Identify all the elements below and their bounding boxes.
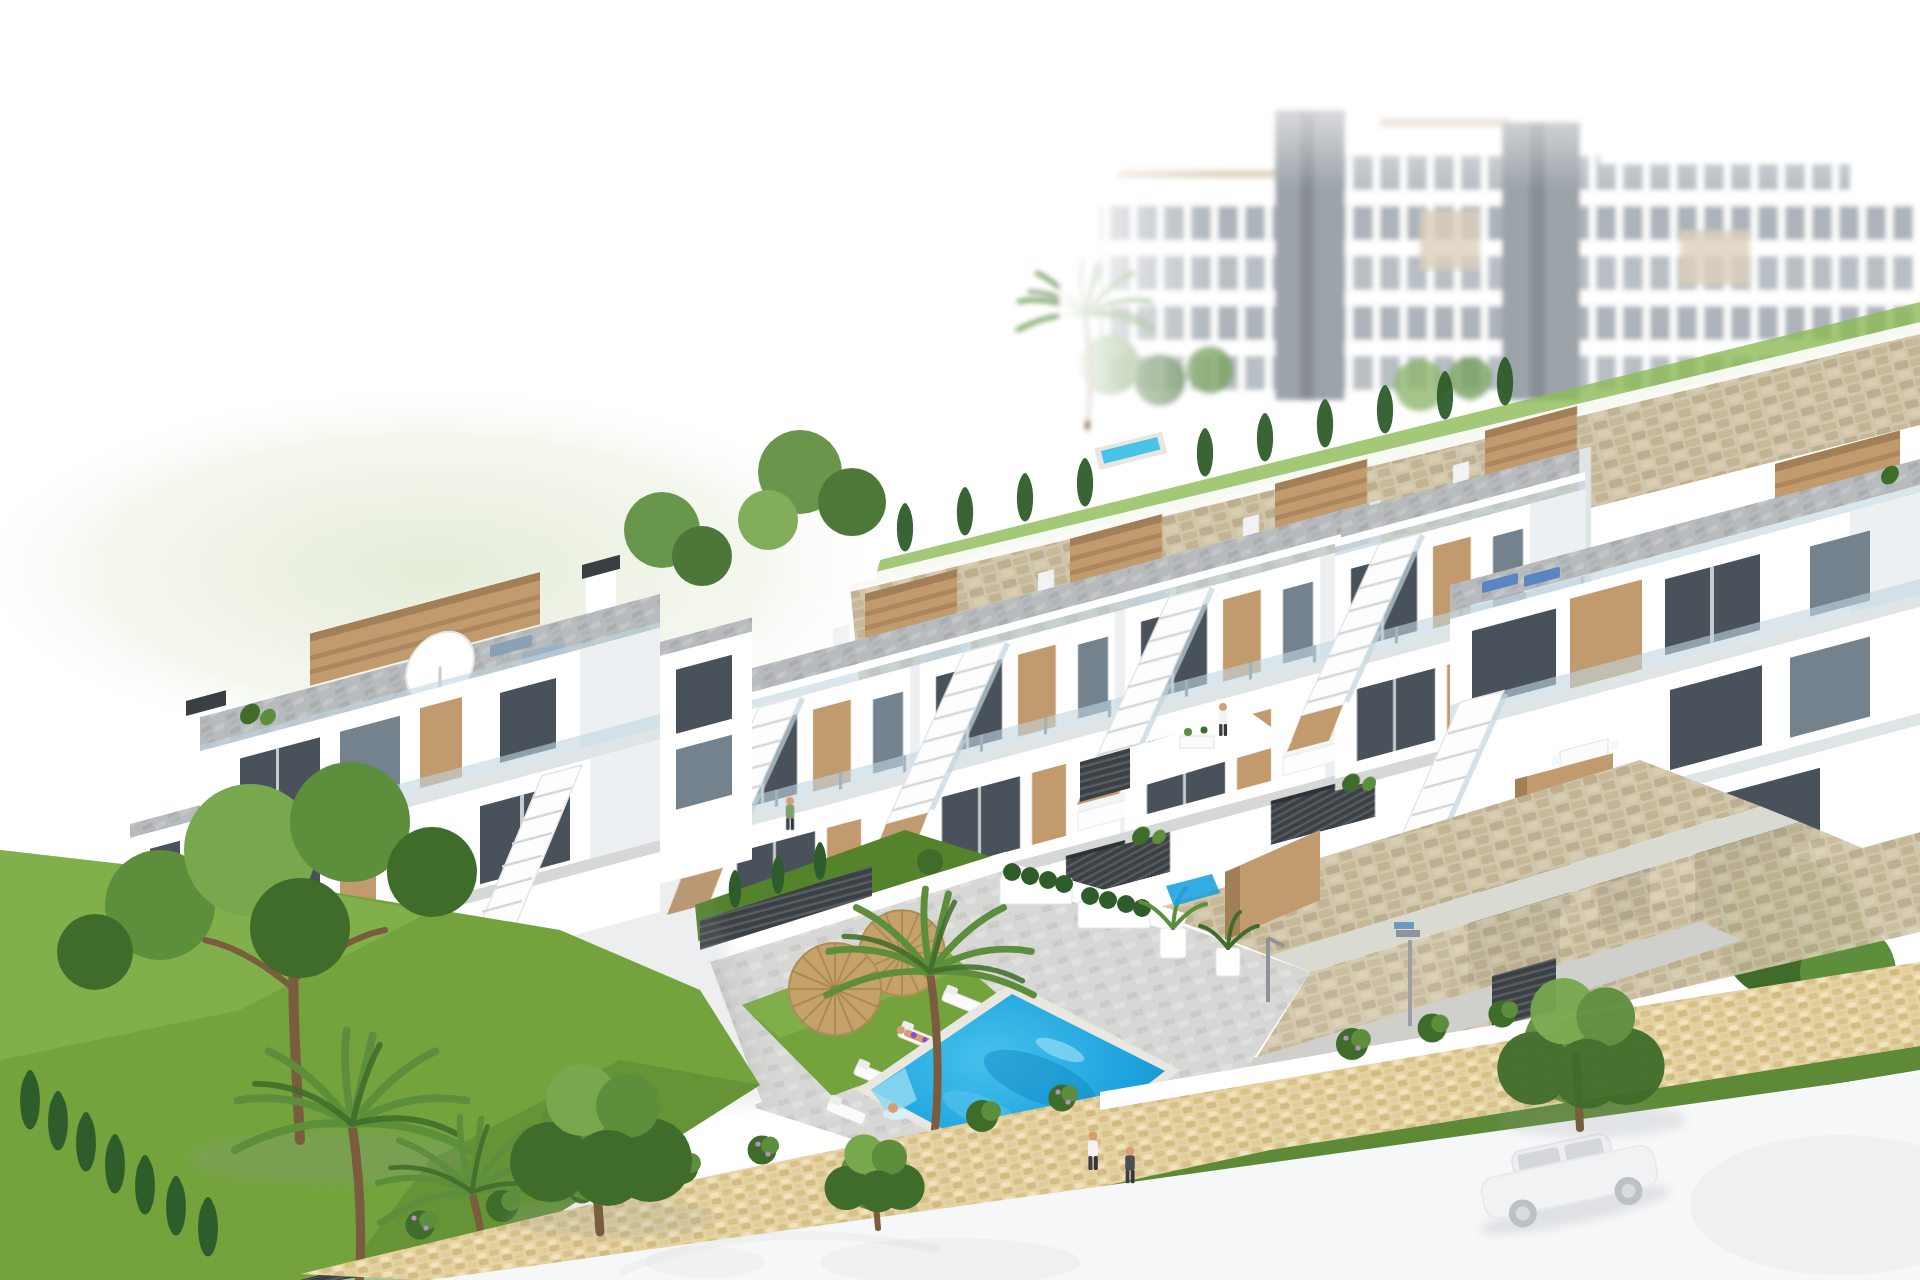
render-canvas: Aerial CGI visualization of a modern whi…: [0, 0, 1920, 1280]
upper-terrace-mini-pool: [1094, 432, 1167, 470]
architectural-render: Aerial CGI visualization of a modern whi…: [0, 0, 1920, 1280]
